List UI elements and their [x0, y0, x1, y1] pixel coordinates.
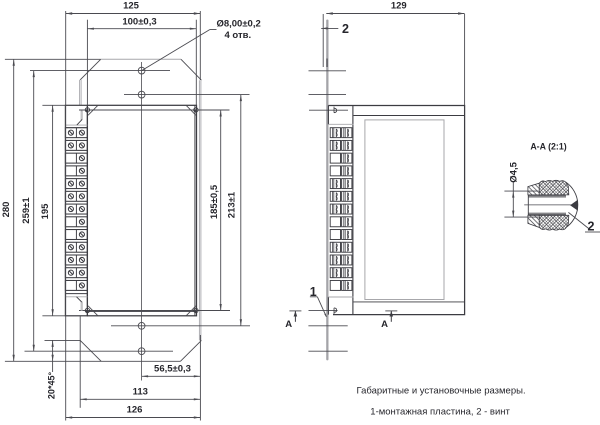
- svg-text:280: 280: [1, 202, 12, 218]
- svg-text:195: 195: [40, 203, 51, 220]
- svg-text:1-монтажная пластина, 2 - винт: 1-монтажная пластина, 2 - винт: [370, 406, 510, 417]
- svg-text:56,5±0,3: 56,5±0,3: [154, 363, 191, 374]
- svg-text:A-A (2:1): A-A (2:1): [530, 142, 566, 152]
- svg-text:2: 2: [588, 220, 595, 234]
- svg-text:A: A: [381, 319, 388, 330]
- svg-text:259±1: 259±1: [21, 197, 32, 224]
- svg-text:126: 126: [127, 405, 143, 416]
- svg-text:129: 129: [391, 1, 407, 12]
- svg-text:Ø4,5: Ø4,5: [509, 161, 520, 182]
- svg-text:4 отв.: 4 отв.: [224, 30, 251, 41]
- svg-text:A: A: [285, 319, 292, 330]
- svg-text:Габаритные и установочные разм: Габаритные и установочные размеры.: [357, 386, 526, 397]
- svg-text:213±1: 213±1: [226, 191, 237, 218]
- svg-text:185±0,5: 185±0,5: [209, 184, 220, 219]
- svg-text:100±0,3: 100±0,3: [122, 17, 156, 28]
- svg-text:113: 113: [133, 387, 148, 398]
- svg-text:2: 2: [342, 22, 349, 36]
- svg-text:Ø8,00±0,2: Ø8,00±0,2: [216, 18, 260, 29]
- svg-text:20*45°: 20*45°: [47, 372, 57, 400]
- svg-text:125: 125: [123, 1, 140, 12]
